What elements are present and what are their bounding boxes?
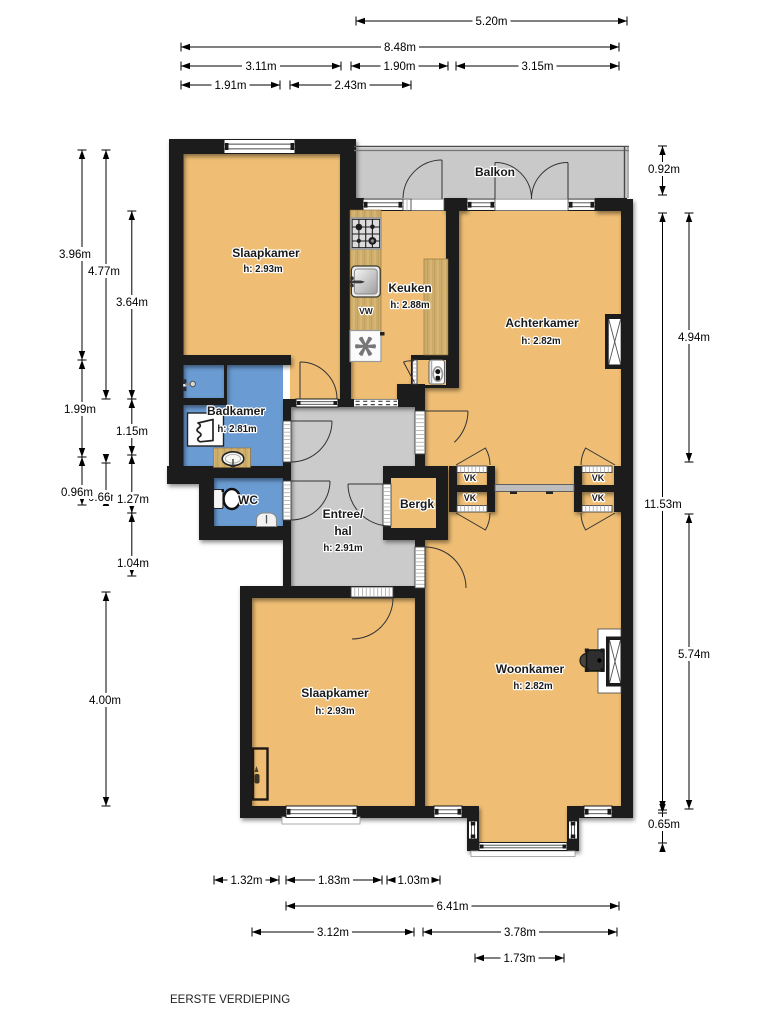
svg-text:Entree/: Entree/ [323, 507, 364, 521]
svg-text:1.27m: 1.27m [117, 494, 149, 506]
svg-text:Badkamer: Badkamer [207, 404, 265, 418]
svg-text:Keuken: Keuken [388, 281, 431, 295]
svg-text:EERSTE VERDIEPING: EERSTE VERDIEPING [170, 994, 290, 1006]
svg-text:Achterkamer: Achterkamer [505, 316, 579, 330]
svg-text:VK: VK [592, 473, 605, 483]
svg-text:1.04m: 1.04m [117, 558, 149, 570]
svg-text:8.48m: 8.48m [384, 42, 416, 54]
svg-text:5.74m: 5.74m [678, 649, 710, 661]
svg-text:1.90m: 1.90m [384, 61, 416, 73]
svg-text:0.92m: 0.92m [648, 164, 680, 176]
svg-text:4.94m: 4.94m [678, 332, 710, 344]
svg-text:1.99m: 1.99m [64, 404, 96, 416]
svg-text:VW: VW [359, 306, 374, 316]
svg-text:1.15m: 1.15m [116, 426, 148, 438]
svg-text:Slaapkamer: Slaapkamer [301, 686, 369, 700]
svg-text:3.78m: 3.78m [504, 927, 536, 939]
svg-text:WC: WC [238, 493, 258, 507]
svg-text:1.32m: 1.32m [231, 875, 263, 887]
svg-text:VK: VK [592, 493, 605, 503]
svg-text:3.12m: 3.12m [317, 927, 349, 939]
svg-text:h: 2.91m: h: 2.91m [323, 543, 363, 554]
svg-text:3.64m: 3.64m [116, 297, 148, 309]
svg-text:h: 2.88m: h: 2.88m [390, 300, 430, 311]
svg-text:Slaapkamer: Slaapkamer [232, 246, 300, 260]
svg-text:11.53m: 11.53m [644, 499, 682, 511]
svg-text:2.43m: 2.43m [335, 80, 367, 92]
svg-text:5.20m: 5.20m [476, 16, 508, 28]
svg-text:h: 2.93m: h: 2.93m [243, 264, 283, 275]
svg-text:3.15m: 3.15m [522, 61, 554, 73]
svg-text:0.96m: 0.96m [61, 487, 93, 499]
svg-text:6.41m: 6.41m [437, 901, 469, 913]
svg-text:1.03m: 1.03m [398, 875, 430, 887]
svg-text:1.91m: 1.91m [215, 80, 247, 92]
svg-text:VK: VK [464, 493, 477, 503]
svg-text:Balkon: Balkon [475, 165, 515, 179]
svg-text:1.73m: 1.73m [504, 953, 536, 965]
svg-text:3.96m: 3.96m [59, 249, 91, 261]
svg-text:h: 2.82m: h: 2.82m [513, 681, 553, 692]
svg-text:0.65m: 0.65m [648, 819, 680, 831]
svg-text:VK: VK [464, 473, 477, 483]
svg-text:h: 2.81m: h: 2.81m [217, 424, 257, 435]
svg-text:h: 2.93m: h: 2.93m [315, 706, 355, 717]
svg-text:3.11m: 3.11m [245, 61, 276, 73]
svg-text:1.83m: 1.83m [318, 875, 350, 887]
svg-text:Bergk: Bergk [400, 497, 434, 511]
svg-text:4.77m: 4.77m [88, 266, 120, 278]
svg-text:h: 2.82m: h: 2.82m [521, 336, 561, 347]
svg-text:hal: hal [334, 524, 351, 538]
svg-text:4.00m: 4.00m [89, 695, 121, 707]
svg-text:Woonkamer: Woonkamer [496, 662, 565, 676]
